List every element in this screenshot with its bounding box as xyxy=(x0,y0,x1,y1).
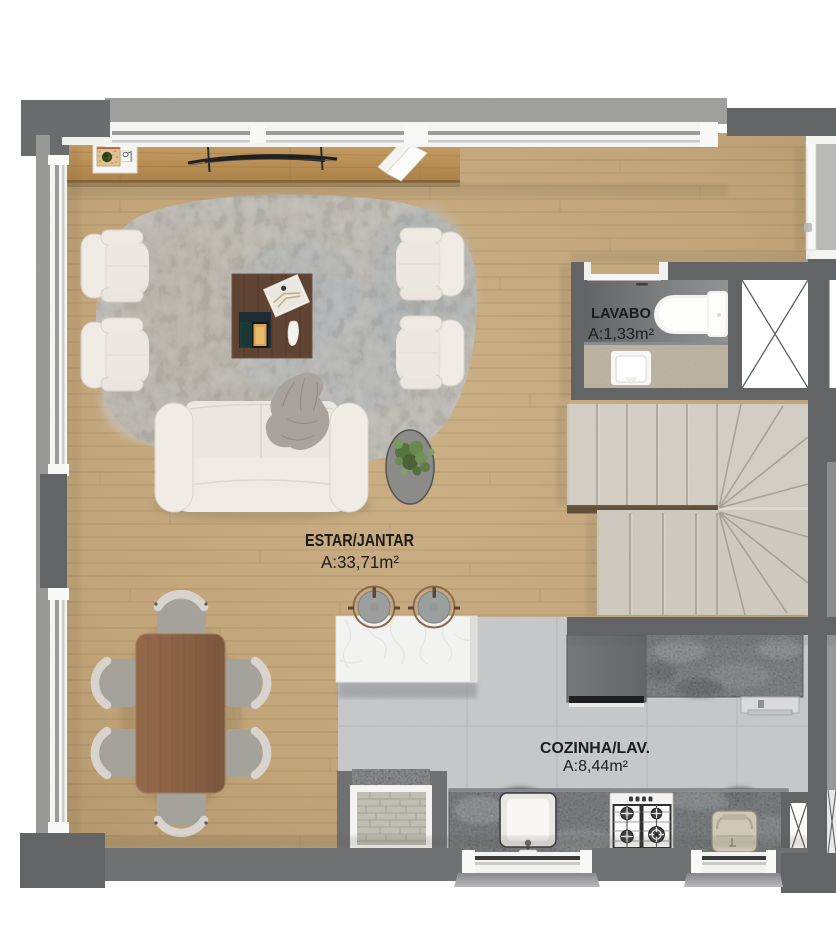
svg-text:ESTAR/JANTAR: ESTAR/JANTAR xyxy=(305,530,414,550)
svg-text:LAVABO: LAVABO xyxy=(591,305,651,322)
svg-text:COZINHA/LAV.: COZINHA/LAV. xyxy=(540,740,650,757)
svg-text:A:33,71m²: A:33,71m² xyxy=(321,552,399,572)
svg-text:A:1,33m²: A:1,33m² xyxy=(588,326,654,343)
svg-text:A:8,44m²: A:8,44m² xyxy=(563,758,628,775)
